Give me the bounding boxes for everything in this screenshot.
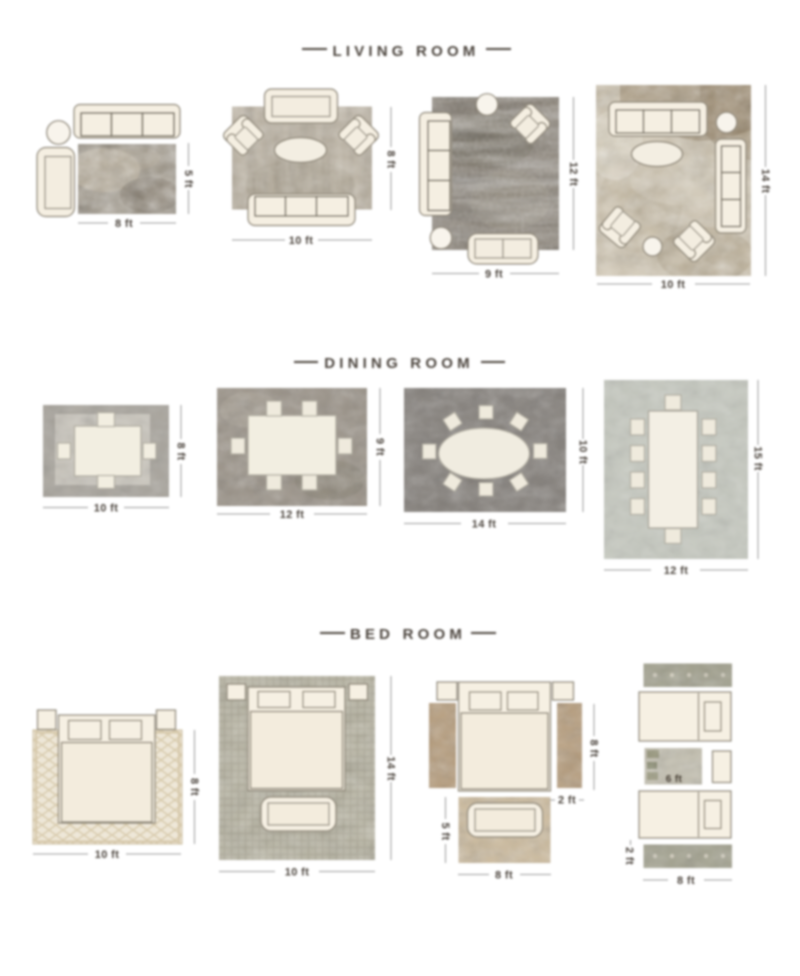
svg-text:12 ft: 12 ft xyxy=(567,162,579,187)
svg-text:10 ft: 10 ft xyxy=(285,867,310,879)
svg-text:BED ROOM: BED ROOM xyxy=(350,626,466,643)
svg-text:8 ft: 8 ft xyxy=(495,870,513,882)
svg-text:12 ft: 12 ft xyxy=(664,565,689,577)
svg-text:2 ft: 2 ft xyxy=(558,795,576,807)
svg-text:8 ft: 8 ft xyxy=(188,778,200,796)
svg-text:14 ft: 14 ft xyxy=(385,756,397,781)
svg-text:2 ft: 2 ft xyxy=(623,847,635,865)
svg-text:10 ft: 10 ft xyxy=(661,279,686,291)
svg-text:6 ft: 6 ft xyxy=(666,774,683,785)
svg-text:10 ft: 10 ft xyxy=(577,440,589,465)
svg-text:12 ft: 12 ft xyxy=(280,509,305,521)
svg-text:10 ft: 10 ft xyxy=(289,235,314,247)
svg-text:10 ft: 10 ft xyxy=(95,849,120,861)
svg-text:5 ft: 5 ft xyxy=(439,822,451,840)
svg-text:LIVING ROOM: LIVING ROOM xyxy=(332,43,479,60)
svg-text:8 ft: 8 ft xyxy=(677,875,695,887)
svg-text:14 ft: 14 ft xyxy=(759,169,771,194)
svg-text:14 ft: 14 ft xyxy=(472,519,497,531)
svg-text:15 ft: 15 ft xyxy=(752,446,764,471)
svg-text:8 ft: 8 ft xyxy=(588,739,600,757)
svg-text:5 ft: 5 ft xyxy=(182,170,194,188)
svg-text:10 ft: 10 ft xyxy=(94,503,119,515)
svg-text:9 ft: 9 ft xyxy=(374,438,386,456)
svg-text:8 ft: 8 ft xyxy=(175,442,187,460)
svg-text:8 ft: 8 ft xyxy=(115,218,133,230)
svg-text:8 ft: 8 ft xyxy=(385,150,397,168)
svg-text:DINING ROOM: DINING ROOM xyxy=(324,355,474,372)
svg-text:9 ft: 9 ft xyxy=(485,269,503,281)
